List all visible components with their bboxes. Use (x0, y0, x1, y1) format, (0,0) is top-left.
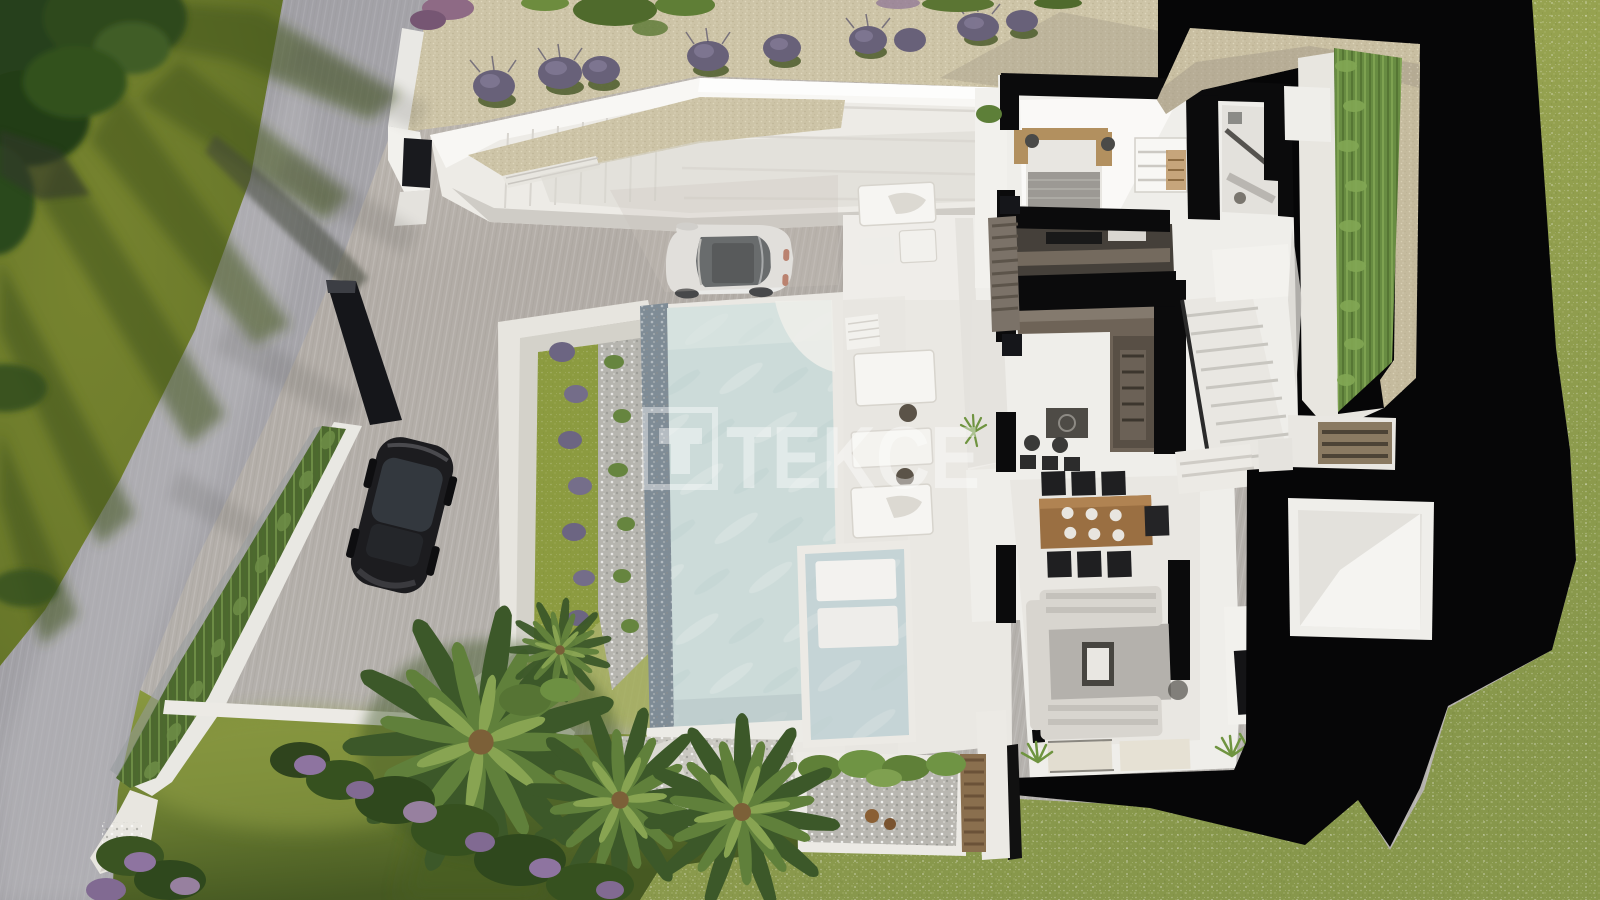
svg-text:TEKCE: TEKCE (726, 408, 980, 507)
